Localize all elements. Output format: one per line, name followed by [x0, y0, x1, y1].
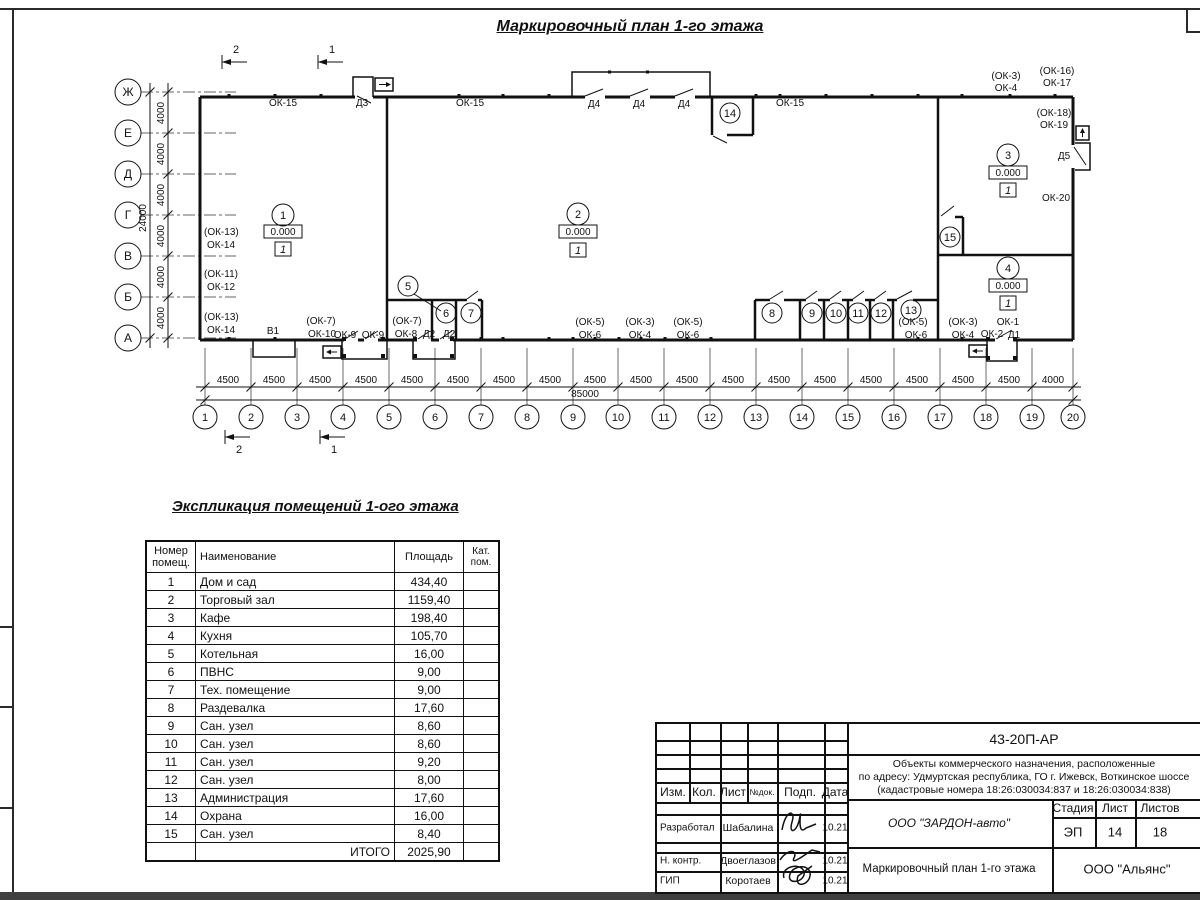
- signature-1: [782, 813, 816, 830]
- exit-arrow-left-icon: [326, 350, 337, 355]
- svg-text:А: А: [124, 331, 132, 345]
- drawing-name: Маркировочный план 1-го этажа: [863, 863, 1036, 875]
- svg-text:(ОК-5): (ОК-5): [673, 317, 702, 328]
- table-row: 11Сан. узел9,20: [146, 753, 499, 771]
- svg-text:Б: Б: [124, 290, 132, 304]
- svg-text:17: 17: [934, 412, 946, 424]
- svg-text:Д2: Д2: [423, 329, 436, 340]
- svg-text:(ОК-13): (ОК-13): [204, 227, 239, 238]
- exit-arrow-right-icon: [379, 82, 391, 87]
- svg-text:ОК-6: ОК-6: [579, 330, 602, 341]
- svg-text:4000: 4000: [1042, 375, 1065, 386]
- svg-text:7: 7: [478, 412, 484, 424]
- explication-table: Номер помещ. Наименование Площадь Кат. п…: [145, 540, 500, 862]
- svg-text:2: 2: [248, 412, 254, 424]
- dim-row-total: 24000: [138, 204, 149, 232]
- window-label: ОК-15: [269, 98, 297, 109]
- svg-text:4000: 4000: [156, 142, 167, 165]
- table-row: 14Охрана16,00: [146, 807, 499, 825]
- svg-text:14: 14: [796, 412, 808, 424]
- table-row: 6ПВНС9,00: [146, 663, 499, 681]
- svg-text:(ОК-3): (ОК-3): [625, 317, 654, 328]
- svg-text:4500: 4500: [906, 375, 929, 386]
- col-izm: Изм.: [660, 785, 686, 799]
- svg-text:Д5: Д5: [1058, 151, 1071, 162]
- svg-text:20: 20: [1067, 412, 1079, 424]
- svg-text:В1: В1: [267, 326, 280, 337]
- svg-text:В: В: [124, 249, 132, 263]
- table-row: 1Дом и сад434,40: [146, 573, 499, 591]
- floor-plan: 24000 4000 4000 4000 4000 4000 4000 Ж Е …: [0, 0, 1200, 470]
- svg-text:1: 1: [1005, 185, 1011, 197]
- total-label: ИТОГО: [196, 843, 395, 862]
- signature-2: [780, 850, 820, 861]
- svg-text:10: 10: [612, 412, 624, 424]
- table-row: 10Сан. узел8,60: [146, 735, 499, 753]
- table-row: 2Торговый зал1159,40: [146, 591, 499, 609]
- col-header-number: Номер помещ.: [146, 541, 196, 573]
- table-row: 12Сан. узел8,00: [146, 771, 499, 789]
- svg-text:2: 2: [575, 209, 581, 221]
- axis-bubble: Ж: [122, 85, 133, 99]
- svg-text:0.000: 0.000: [995, 281, 1020, 292]
- address-line-2: по адресу: Удмуртская республика, ГО г. …: [859, 771, 1190, 783]
- svg-text:3: 3: [1005, 150, 1011, 162]
- room-mark: 1: [280, 244, 286, 256]
- svg-text:Е: Е: [124, 126, 132, 140]
- svg-text:6: 6: [443, 308, 449, 320]
- svg-text:ОК-15: ОК-15: [776, 98, 804, 109]
- svg-text:4000: 4000: [156, 306, 167, 329]
- svg-text:(ОК-18): (ОК-18): [1037, 108, 1072, 119]
- svg-text:ОК-12: ОК-12: [207, 282, 235, 293]
- svg-text:ОК-20: ОК-20: [1042, 193, 1070, 204]
- section-mark-1: 1: [329, 44, 335, 56]
- svg-text:4500: 4500: [998, 375, 1021, 386]
- svg-text:0.000: 0.000: [565, 227, 590, 238]
- svg-text:4500: 4500: [860, 375, 883, 386]
- address-line-1: Объекты коммерческого назначения, распол…: [893, 758, 1155, 770]
- exit-arrow-up-icon: [1080, 128, 1085, 137]
- svg-text:13: 13: [905, 305, 917, 317]
- table-row: 15Сан. узел8,40: [146, 825, 499, 843]
- dim-bay-total: 85000: [571, 389, 599, 400]
- svg-text:8: 8: [769, 308, 775, 320]
- col-list: Лист: [720, 785, 746, 799]
- svg-text:ОК-1: ОК-1: [997, 317, 1020, 328]
- svg-text:15: 15: [842, 412, 854, 424]
- room-elevation: 0.000: [270, 227, 295, 238]
- svg-text:(ОК-13): (ОК-13): [204, 312, 239, 323]
- svg-text:4000: 4000: [156, 224, 167, 247]
- svg-text:ОК-10: ОК-10: [308, 329, 336, 340]
- exit-arrow-left-icon: [972, 349, 983, 354]
- svg-text:(ОК-11): (ОК-11): [204, 269, 238, 280]
- title-block: Изм. Кол. Лист №док. Подп. Дата Разработ…: [655, 722, 1200, 894]
- svg-text:1: 1: [331, 444, 337, 456]
- svg-text:4: 4: [340, 412, 346, 424]
- svg-text:7: 7: [468, 308, 474, 320]
- svg-text:ОК-19: ОК-19: [1040, 120, 1068, 131]
- table-row: 4Кухня105,70: [146, 627, 499, 645]
- room-markers: 1 0.000 1 2 0.000 1 3 0.000 1 4 0.000 1 …: [264, 103, 1027, 323]
- table-row: 5Котельная16,00: [146, 645, 499, 663]
- svg-text:4500: 4500: [217, 375, 240, 386]
- doc-number: 43-20П-АР: [989, 731, 1058, 747]
- svg-text:4500: 4500: [630, 375, 653, 386]
- svg-text:4500: 4500: [584, 375, 607, 386]
- svg-text:2: 2: [236, 444, 242, 456]
- signature-3: [784, 866, 812, 884]
- svg-text:Г: Г: [125, 208, 132, 222]
- col-podp: Подп.: [784, 785, 816, 799]
- svg-text:(ОК-16): (ОК-16): [1040, 66, 1075, 77]
- walls: [200, 97, 1073, 340]
- col-header-name: Наименование: [196, 541, 395, 573]
- svg-text:11: 11: [658, 412, 669, 424]
- svg-text:4500: 4500: [401, 375, 424, 386]
- sheets-label: Листов: [1141, 801, 1180, 815]
- table-total-row: ИТОГО2025,90: [146, 843, 499, 862]
- frame-left-mark-3: [0, 807, 12, 809]
- svg-text:10: 10: [830, 308, 842, 320]
- entry-box-d5: [1075, 126, 1090, 170]
- col-ndoc: №док.: [750, 787, 775, 797]
- table-row: 3Кафе198,40: [146, 609, 499, 627]
- table-row: 8Раздевалка17,60: [146, 699, 499, 717]
- svg-text:Д4: Д4: [588, 99, 601, 110]
- svg-text:4500: 4500: [309, 375, 332, 386]
- svg-text:ОК-14: ОК-14: [207, 325, 235, 336]
- svg-text:12: 12: [875, 308, 887, 320]
- table-header-row: Номер помещ. Наименование Площадь Кат. п…: [146, 541, 499, 573]
- sheets-value: 18: [1153, 825, 1167, 840]
- svg-text:4500: 4500: [447, 375, 470, 386]
- svg-text:13: 13: [750, 412, 762, 424]
- svg-text:4500: 4500: [539, 375, 562, 386]
- org-name: ООО "ЗАРДОН-авто": [888, 816, 1010, 830]
- frame-left-mark-2: [0, 706, 12, 708]
- svg-text:Д4: Д4: [678, 99, 691, 110]
- svg-text:ОК-6: ОК-6: [905, 330, 928, 341]
- svg-text:ОК-6: ОК-6: [677, 330, 700, 341]
- svg-text:ОК-14: ОК-14: [207, 240, 235, 251]
- svg-text:Д4: Д4: [633, 99, 646, 110]
- svg-text:ОК-2: ОК-2: [981, 329, 1004, 340]
- svg-text:4500: 4500: [768, 375, 791, 386]
- table-row: 7Тех. помещение9,00: [146, 681, 499, 699]
- frame-left-mark-1: [0, 626, 12, 628]
- svg-text:4000: 4000: [156, 101, 167, 124]
- col-data: Дата: [822, 785, 849, 799]
- column-grid: 4500 4500 4500 4500 4500 4500 4500 4500 …: [193, 348, 1085, 429]
- total-value: 2025,90: [395, 843, 464, 862]
- room-number: 1: [280, 210, 286, 222]
- svg-text:4500: 4500: [676, 375, 699, 386]
- table-row: 9Сан. узел8,60: [146, 717, 499, 735]
- svg-text:16: 16: [888, 412, 900, 424]
- col-header-category: Кат. пом.: [464, 541, 500, 573]
- svg-text:ОК-4: ОК-4: [629, 330, 652, 341]
- svg-text:11: 11: [852, 308, 863, 320]
- svg-text:4500: 4500: [814, 375, 837, 386]
- stage-label: Стадия: [1053, 801, 1094, 815]
- axis-row-grid: 24000 4000 4000 4000 4000 4000 4000 Ж Е …: [115, 79, 236, 351]
- svg-text:3: 3: [294, 412, 300, 424]
- svg-text:5: 5: [386, 412, 392, 424]
- svg-text:5: 5: [405, 281, 411, 293]
- svg-text:(ОК-5): (ОК-5): [575, 317, 604, 328]
- svg-text:8: 8: [524, 412, 530, 424]
- section-mark-2: 2: [233, 44, 239, 56]
- svg-text:19: 19: [1026, 412, 1038, 424]
- svg-text:(ОК-7): (ОК-7): [392, 316, 421, 327]
- company-name: ООО "Альянс": [1084, 862, 1171, 877]
- address-line-3: (кадастровые номера 18:26:030034:837 и 1…: [877, 784, 1171, 796]
- svg-text:15: 15: [944, 232, 956, 244]
- svg-text:4500: 4500: [722, 375, 745, 386]
- svg-text:(ОК-7): (ОК-7): [306, 316, 335, 327]
- svg-text:Д2: Д2: [443, 329, 456, 340]
- plan-labels: ОК-15 Д3 ОК-15 Д4 Д4 Д4 ОК-15 (ОК-3) ОК-…: [204, 66, 1074, 341]
- table-row: 13Администрация17,60: [146, 789, 499, 807]
- svg-text:Д: Д: [124, 167, 132, 181]
- explication-title: Экспликация помещений 1-ого этажа: [172, 498, 459, 515]
- svg-text:ОК-8: ОК-8: [395, 329, 418, 340]
- svg-text:(ОК-3): (ОК-3): [948, 317, 977, 328]
- col-header-area: Площадь: [395, 541, 464, 573]
- sheet-label: Лист: [1102, 801, 1128, 815]
- svg-text:ОК-4: ОК-4: [995, 83, 1018, 94]
- svg-text:18: 18: [980, 412, 992, 424]
- stage-value: ЭП: [1064, 825, 1083, 840]
- svg-text:4500: 4500: [493, 375, 516, 386]
- svg-text:4500: 4500: [355, 375, 378, 386]
- svg-text:0.000: 0.000: [995, 168, 1020, 179]
- svg-text:4500: 4500: [263, 375, 286, 386]
- svg-text:4000: 4000: [156, 183, 167, 206]
- role-label: Разработал: [660, 823, 714, 834]
- svg-text:4000: 4000: [156, 265, 167, 288]
- svg-text:1: 1: [575, 245, 581, 257]
- svg-text:ОК-4: ОК-4: [952, 330, 975, 341]
- svg-text:6: 6: [432, 412, 438, 424]
- door-label: Д3: [356, 98, 369, 109]
- svg-text:ОК-9: ОК-9: [362, 330, 385, 341]
- svg-text:9: 9: [570, 412, 576, 424]
- svg-text:Д1: Д1: [1008, 330, 1021, 341]
- window-ticks: [199, 94, 1075, 340]
- svg-text:ОК-9: ОК-9: [334, 330, 357, 341]
- svg-text:ОК-17: ОК-17: [1043, 78, 1071, 89]
- svg-text:(ОК-5): (ОК-5): [898, 317, 927, 328]
- svg-text:14: 14: [724, 108, 736, 120]
- svg-text:1: 1: [1005, 298, 1011, 310]
- svg-text:9: 9: [809, 308, 815, 320]
- sheet-value: 14: [1108, 825, 1122, 840]
- svg-text:(ОК-3): (ОК-3): [991, 71, 1020, 82]
- svg-text:4500: 4500: [952, 375, 975, 386]
- svg-text:12: 12: [704, 412, 716, 424]
- svg-text:ОК-15: ОК-15: [456, 98, 484, 109]
- sheet-page: { "sheet": { "title": "Маркировочный пла…: [0, 0, 1200, 900]
- role-name: Шабалина: [723, 822, 774, 834]
- column-bubble: 1: [202, 412, 208, 424]
- signatures: [772, 798, 832, 890]
- col-kol: Кол.: [692, 785, 716, 799]
- svg-text:4: 4: [1005, 263, 1011, 275]
